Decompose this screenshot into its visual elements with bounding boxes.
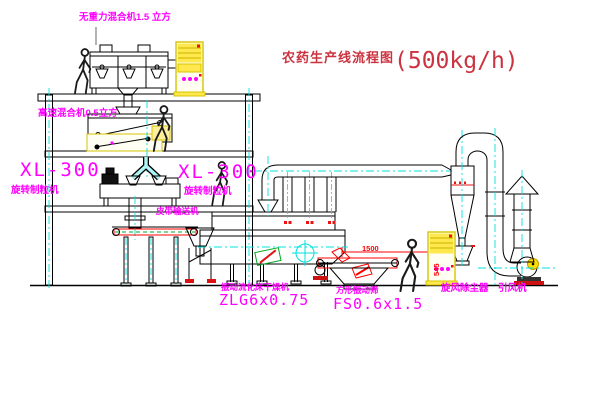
y-chute xyxy=(133,157,159,178)
diagram-title: 农药生产线流程图(500kg/h) xyxy=(282,47,519,74)
exhaust-stack xyxy=(506,170,538,290)
cyclone-to-fan-duct xyxy=(456,128,521,288)
label-sieve-model: FS0.6x1.5 xyxy=(333,297,423,312)
label-dryer-model: ZLG6x0.75 xyxy=(219,293,309,308)
label-granulator-right-name: 旋转制粒机 xyxy=(184,187,232,197)
label-high-speed-mixer: 高速混合机0.5立方 xyxy=(38,109,118,119)
label-granulator-left-name: 旋转制粒机 xyxy=(11,186,59,196)
label-sieve-name: 方形振动筛 xyxy=(336,286,379,295)
label-granulator-right-model: XL-300 xyxy=(178,163,259,182)
label-cyclone: 旋风除尘器 xyxy=(441,284,489,294)
induced-draft-fan xyxy=(478,257,556,285)
label-belt-conveyor: 皮带输送机 xyxy=(156,207,199,216)
label-granulator-left-model: XL-300 xyxy=(20,161,101,180)
exhaust-duct xyxy=(254,156,452,216)
label-fan: 引风机 xyxy=(498,284,527,294)
person-figure-ground xyxy=(401,240,419,291)
control-cabinet-top xyxy=(174,42,205,96)
person-figure-top-floor xyxy=(75,49,90,93)
control-cabinet-right xyxy=(426,232,457,285)
belt-conveyor xyxy=(112,227,198,286)
dimension-sieve-length: 1500 xyxy=(362,244,379,253)
title-text: 农药生产线流程图 xyxy=(282,50,394,65)
process-flow-diagram: 农药生产线流程图(500kg/h) 无重力混合机1.5 立方 高速混合机0.5立… xyxy=(0,0,600,403)
label-gravity-mixer: 无重力混合机1.5 立方 xyxy=(79,13,171,23)
dimension-sieve-height: 545 xyxy=(432,263,441,276)
title-capacity: (500kg/h) xyxy=(394,48,519,74)
gravity-free-mixer xyxy=(90,27,176,101)
vibrating-sieve xyxy=(317,247,439,289)
